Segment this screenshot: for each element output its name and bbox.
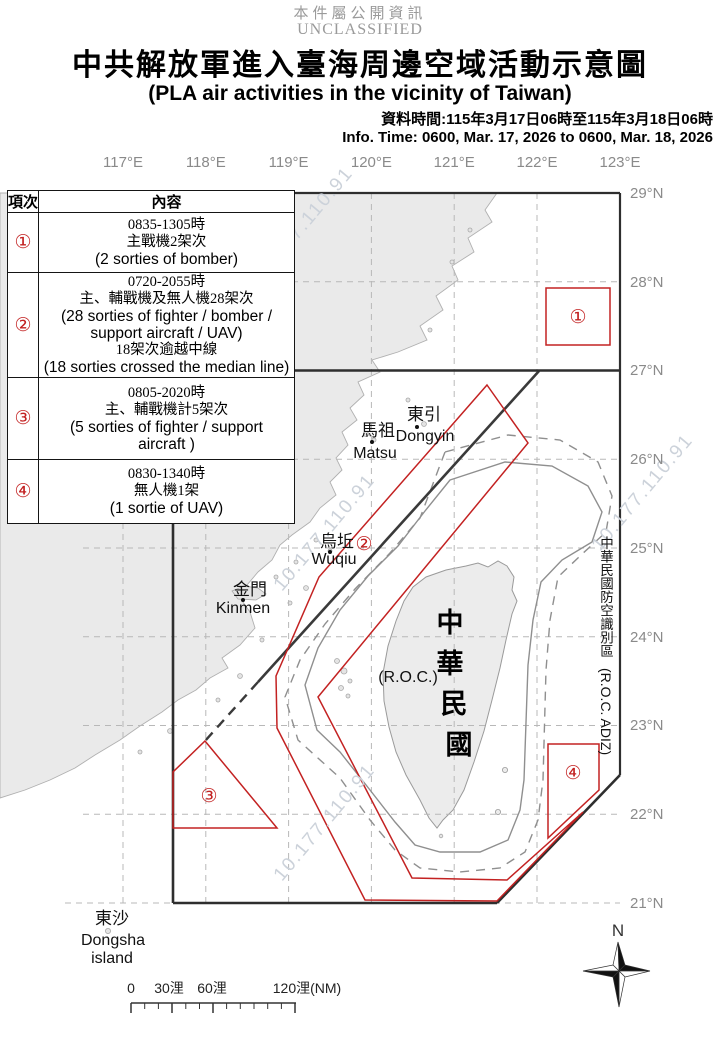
- svg-text:國: 國: [446, 730, 473, 760]
- matsu-dot: [370, 440, 374, 444]
- latitude-labels: 29°N 28°N 27°N 26°N 25°N 24°N 23°N 22°N …: [630, 185, 664, 912]
- classification-en: UNCLASSIFIED: [0, 21, 720, 39]
- page-title: 中共解放軍進入臺海周邊空域活動示意圖: [0, 40, 720, 84]
- svg-text:27°N: 27°N: [630, 362, 664, 379]
- column-header-content: 內容: [39, 191, 295, 213]
- svg-text:(R.O.C.): (R.O.C.): [378, 669, 438, 686]
- region-3-marker: ③: [200, 786, 217, 807]
- longitude-labels: 117°E 118°E 119°E 120°E 121°E 122°E 123°…: [103, 154, 640, 171]
- row-content-line: (2 sorties of bomber): [39, 251, 294, 268]
- row-item-number: ②: [8, 273, 39, 378]
- table-row: ④0830-1340時無人機1架(1 sortie of UAV): [8, 460, 295, 524]
- svg-text:60浬: 60浬: [197, 980, 227, 996]
- row-content-line: 0830-1340時: [39, 466, 294, 483]
- table-row: ②0720-2055時主、輔戰機及無人機28架次(28 sorties of f…: [8, 273, 295, 378]
- svg-text:29°N: 29°N: [630, 185, 664, 202]
- svg-text:10.177.110.91: 10.177.110.91: [270, 760, 380, 885]
- svg-text:Kinmen: Kinmen: [216, 600, 270, 617]
- svg-text:119°E: 119°E: [269, 154, 309, 171]
- svg-text:121°E: 121°E: [434, 154, 475, 171]
- row-content-line: 0835-1305時: [39, 217, 294, 234]
- svg-text:island: island: [91, 950, 133, 967]
- region-2-marker: ②: [355, 534, 372, 555]
- row-content-line: (1 sortie of UAV): [39, 500, 294, 517]
- row-content: 0835-1305時主戰機2架次(2 sorties of bomber): [39, 213, 295, 273]
- svg-text:烏坵: 烏坵: [320, 532, 354, 551]
- compass-north-label: N: [612, 921, 624, 940]
- svg-text:24°N: 24°N: [630, 629, 664, 646]
- activity-table: 項次 內容 ①0835-1305時主戰機2架次(2 sorties of bom…: [7, 190, 295, 524]
- row-content-line: 0720-2055時: [39, 274, 294, 291]
- region-1-marker: ①: [569, 307, 586, 328]
- svg-text:118°E: 118°E: [186, 154, 226, 171]
- row-content-line: 主、輔戰機計5架次: [39, 402, 294, 419]
- table-row: ①0835-1305時主戰機2架次(2 sorties of bomber): [8, 213, 295, 273]
- svg-text:Dongsha: Dongsha: [81, 932, 145, 949]
- row-content-line: 0805-2020時: [39, 385, 294, 402]
- table-row: ③0805-2020時主、輔戰機計5架次(5 sorties of fighte…: [8, 378, 295, 460]
- row-content-line: 無人機1架: [39, 483, 294, 500]
- page-subtitle: (PLA air activities in the vicinity of T…: [0, 82, 720, 106]
- column-header-item: 項次: [8, 191, 39, 213]
- svg-text:28°N: 28°N: [630, 274, 664, 291]
- info-time-en: Info. Time: 0600, Mar. 17, 2026 to 0600,…: [342, 129, 713, 146]
- row-content-line: aircraft ): [39, 436, 294, 453]
- svg-text:中: 中: [437, 608, 464, 638]
- pla-activity-map-page: 10.177.110.91 10.177.110.91 10.177.110.9…: [0, 0, 720, 1040]
- svg-text:26°N: 26°N: [630, 451, 664, 468]
- svg-text:117°E: 117°E: [103, 154, 143, 171]
- info-time-zh: 資料時間:115年3月17日06時至115年3月18日06時: [381, 108, 713, 129]
- svg-text:120°E: 120°E: [351, 154, 392, 171]
- compass-rose: N: [583, 921, 650, 1007]
- svg-text:120浬(NM): 120浬(NM): [273, 980, 341, 996]
- svg-text:0: 0: [127, 980, 135, 996]
- svg-text:30浬: 30浬: [154, 980, 184, 996]
- svg-text:區: 區: [600, 644, 614, 659]
- row-content: 0830-1340時無人機1架(1 sortie of UAV): [39, 460, 295, 524]
- row-content-line: 主戰機2架次: [39, 234, 294, 251]
- scale-bar: 0 30浬 60浬 120浬(NM): [127, 980, 341, 1013]
- svg-text:23°N: 23°N: [630, 717, 664, 734]
- adiz-vertical-label: 中 華 民 國 防 空 識 別 區 (R.O.C. ADIZ): [598, 536, 614, 755]
- svg-text:東沙: 東沙: [95, 909, 129, 928]
- svg-text:25°N: 25°N: [630, 540, 664, 557]
- row-item-number: ①: [8, 213, 39, 273]
- row-content: 0720-2055時主、輔戰機及無人機28架次(28 sorties of fi…: [39, 273, 295, 378]
- row-item-number: ④: [8, 460, 39, 524]
- row-content-line: (18 sorties crossed the median line): [39, 359, 294, 376]
- svg-text:Wuqiu: Wuqiu: [311, 551, 356, 568]
- svg-text:民: 民: [441, 689, 468, 719]
- svg-text:Matsu: Matsu: [353, 445, 397, 462]
- activity-table-body: ①0835-1305時主戰機2架次(2 sorties of bomber)②0…: [8, 213, 295, 524]
- svg-text:22°N: 22°N: [630, 806, 664, 823]
- svg-text:122°E: 122°E: [516, 154, 557, 171]
- row-content-line: 主、輔戰機及無人機28架次: [39, 291, 294, 308]
- classification-zh: 本件屬公開資訊: [0, 2, 720, 23]
- activity-region-3: [173, 741, 277, 828]
- region-4-marker: ④: [564, 763, 581, 784]
- svg-text:Dongyin: Dongyin: [396, 428, 455, 445]
- svg-text:馬祖: 馬祖: [361, 421, 395, 440]
- row-content-line: 18架次逾越中線: [39, 342, 294, 359]
- svg-text:123°E: 123°E: [599, 154, 640, 171]
- row-content: 0805-2020時主、輔戰機計5架次(5 sorties of fighter…: [39, 378, 295, 460]
- activity-table-header-row: 項次 內容: [8, 191, 295, 213]
- svg-text:金門: 金門: [233, 580, 267, 599]
- row-content-line: (28 sorties of fighter / bomber /: [39, 308, 294, 325]
- svg-text:21°N: 21°N: [630, 895, 664, 912]
- row-item-number: ③: [8, 378, 39, 460]
- svg-text:華: 華: [437, 649, 464, 679]
- svg-text:(R.O.C. ADIZ): (R.O.C. ADIZ): [598, 668, 614, 755]
- row-content-line: (5 sorties of fighter / support: [39, 419, 294, 436]
- row-content-line: support aircraft / UAV): [39, 325, 294, 342]
- place-dongsha: 東沙 Dongsha island: [81, 909, 145, 967]
- svg-text:東引: 東引: [407, 405, 441, 424]
